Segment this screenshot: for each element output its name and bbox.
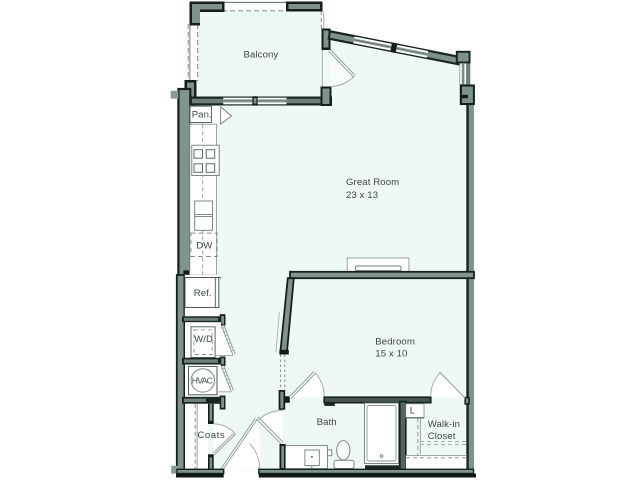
svg-text:Coats: Coats xyxy=(197,430,225,441)
svg-text:DW: DW xyxy=(196,240,213,251)
svg-text:23 x 13: 23 x 13 xyxy=(346,190,378,201)
svg-text:Pan.: Pan. xyxy=(192,110,212,121)
svg-text:L: L xyxy=(410,404,415,415)
svg-text:15 x 10: 15 x 10 xyxy=(375,348,407,359)
svg-text:Balcony: Balcony xyxy=(244,50,279,61)
svg-text:Bath: Bath xyxy=(317,417,337,428)
svg-text:Bedroom: Bedroom xyxy=(375,337,415,348)
svg-text:Walk-in: Walk-in xyxy=(428,419,460,430)
svg-text:HVAC: HVAC xyxy=(192,376,213,386)
svg-text:Ref.: Ref. xyxy=(194,288,212,299)
svg-text:Great Room: Great Room xyxy=(346,177,399,188)
svg-text:W/D: W/D xyxy=(194,333,213,344)
svg-text:Closet: Closet xyxy=(428,431,456,442)
